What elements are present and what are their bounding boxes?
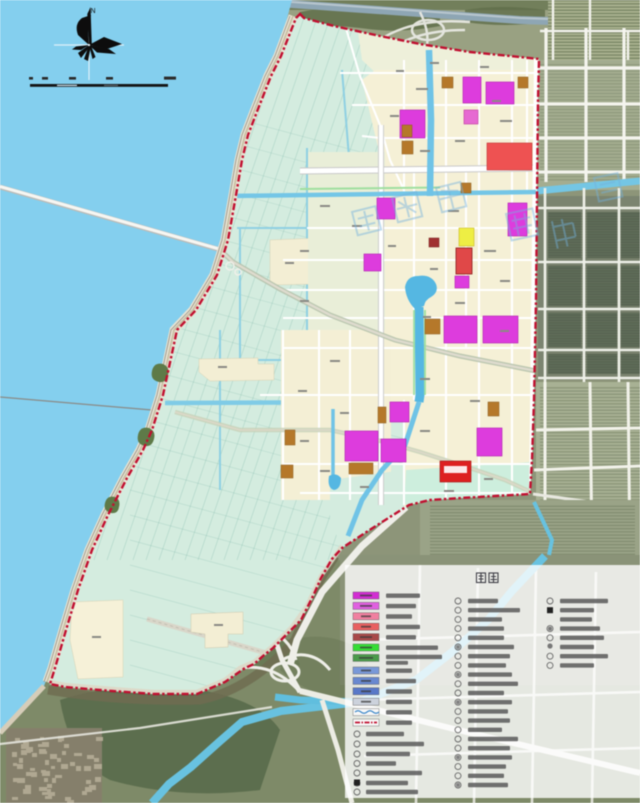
svg-text:N: N bbox=[90, 8, 95, 15]
